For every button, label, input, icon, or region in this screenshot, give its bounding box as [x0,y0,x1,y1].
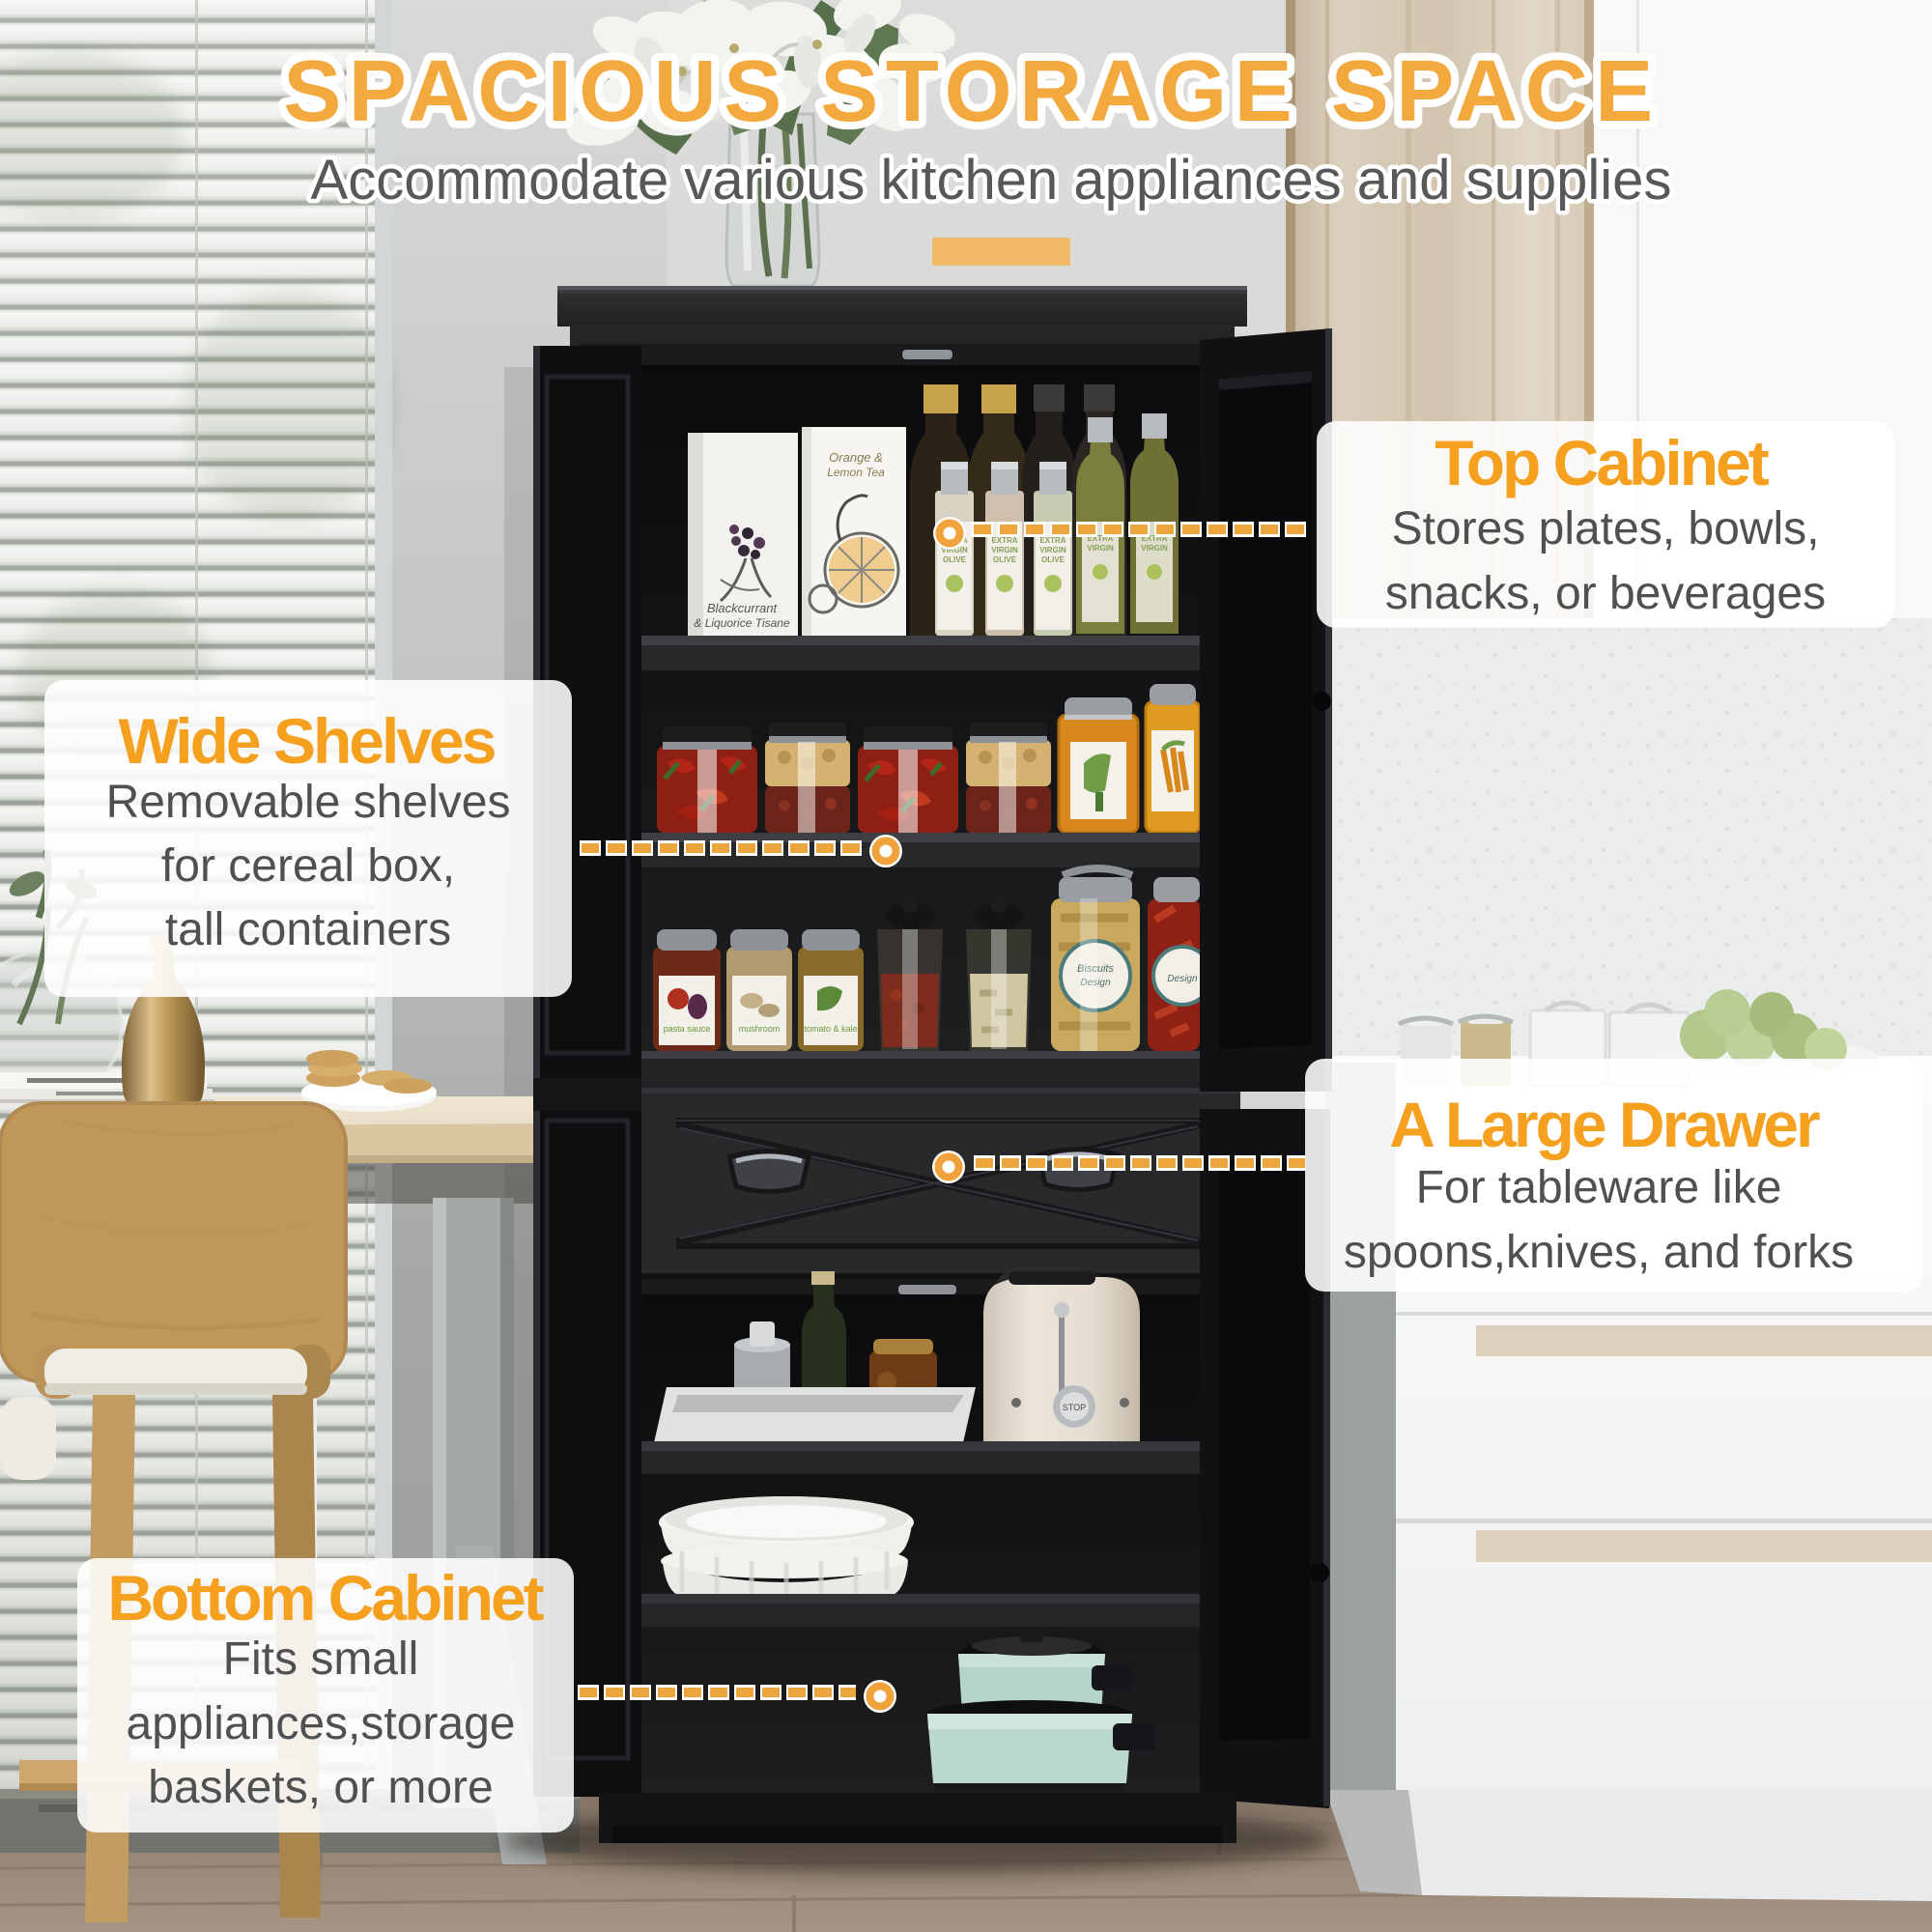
svg-text:tall containers: tall containers [165,904,451,955]
svg-text:OLIVE: OLIVE [993,555,1017,564]
svg-text:EXTRA: EXTRA [1039,536,1065,545]
svg-text:snacks, or beverages: snacks, or beverages [1385,568,1826,619]
svg-text:OLIVE: OLIVE [943,555,967,564]
svg-text:EXTRA: EXTRA [991,536,1017,545]
svg-text:Design: Design [1167,974,1198,984]
svg-text:appliances,storage: appliances,storage [127,1698,516,1749]
svg-text:Removable shelves: Removable shelves [106,777,511,828]
svg-text:Top Cabinet: Top Cabinet [1435,427,1769,498]
svg-text:VIRGIN: VIRGIN [991,546,1018,554]
svg-text:Bottom Cabinet: Bottom Cabinet [107,1562,544,1634]
svg-text:Lemon Tea: Lemon Tea [827,466,885,479]
svg-text:for cereal box,: for cereal box, [161,840,455,892]
svg-text:Accommodate various kitchen ap: Accommodate various kitchen appliances a… [311,149,1672,212]
svg-text:pasta sauce: pasta sauce [664,1024,711,1034]
svg-text:Orange &: Orange & [829,450,883,465]
svg-text:spoons,knives, and forks: spoons,knives, and forks [1344,1227,1854,1278]
svg-text:A Large Drawer: A Large Drawer [1389,1089,1820,1160]
svg-text:For tableware like: For tableware like [1416,1162,1782,1213]
svg-text:Wide Shelves: Wide Shelves [119,705,495,777]
svg-text:STOP: STOP [1063,1403,1086,1412]
svg-text:VIRGIN: VIRGIN [1039,546,1066,554]
svg-text:VIRGIN: VIRGIN [1087,544,1114,553]
svg-text:VIRGIN: VIRGIN [1141,544,1168,553]
svg-text:Fits small: Fits small [223,1634,419,1685]
svg-text:baskets, or more: baskets, or more [148,1762,493,1813]
svg-text:SPACIOUS STORAGE SPACE: SPACIOUS STORAGE SPACE [283,43,1660,140]
svg-text:& Liquorice Tisane: & Liquorice Tisane [694,616,790,630]
svg-text:mushroom: mushroom [739,1024,781,1034]
svg-text:Stores plates, bowls,: Stores plates, bowls, [1392,503,1820,554]
svg-text:tomato & kale: tomato & kale [804,1024,857,1034]
svg-text:Blackcurrant: Blackcurrant [707,601,779,615]
svg-text:OLIVE: OLIVE [1041,555,1065,564]
